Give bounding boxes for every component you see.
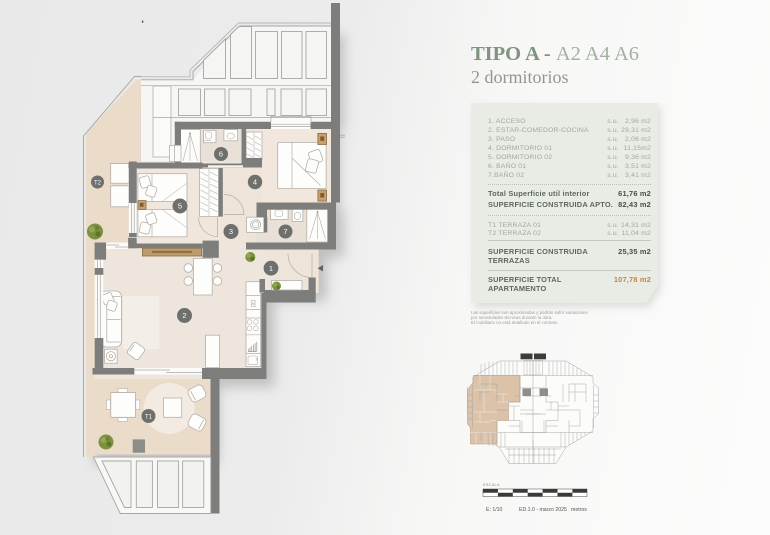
svg-text:ESCALA: ESCALA bbox=[483, 483, 500, 487]
svg-text:ED.1.0 - marzo 2025: ED.1.0 - marzo 2025 bbox=[519, 507, 567, 513]
svg-text:E: 1/10: E: 1/10 bbox=[486, 507, 503, 513]
svg-text:metros: metros bbox=[571, 507, 587, 513]
